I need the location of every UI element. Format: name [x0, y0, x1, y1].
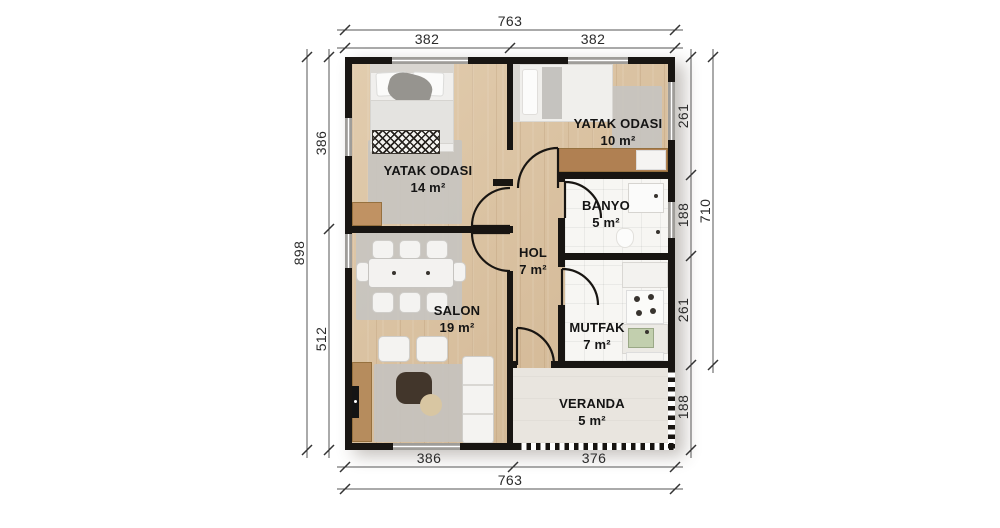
room-name: HOL: [519, 244, 547, 261]
room-name: VERANDA: [559, 395, 625, 412]
room-area: 10 m²: [574, 132, 663, 149]
floor-plan-image: YATAK ODASI 14 m² YATAK ODASI 10 m² BANY…: [0, 0, 1000, 528]
room-name: YATAK ODASI: [574, 115, 663, 132]
dim-bottom-left: 386: [407, 450, 451, 466]
dim-right-1: 261: [675, 94, 691, 138]
room-label-bedroom1: YATAK ODASI 14 m²: [384, 162, 473, 196]
door-arc-bedroom1: [472, 188, 510, 226]
dim-top-total: 763: [488, 13, 532, 29]
dim-bottom-right: 376: [572, 450, 616, 466]
room-area: 14 m²: [384, 179, 473, 196]
wall-hall-right-c: [558, 305, 565, 368]
door-arc-kitchen: [562, 269, 598, 305]
room-name: MUTFAK: [569, 319, 624, 336]
room-label-bathroom: BANYO 5 m²: [582, 197, 630, 231]
door-arc-bedroom2: [518, 148, 558, 188]
wall-hall-veranda-a: [507, 361, 517, 368]
wall-center-upper: [507, 57, 513, 150]
room-label-veranda: VERANDA 5 m²: [559, 395, 625, 429]
dim-right-total: 710: [697, 189, 713, 233]
dim-right-3: 261: [675, 288, 691, 332]
room-area: 5 m²: [559, 412, 625, 429]
dim-left-total: 898: [291, 231, 307, 275]
wall-bedroom2-bath: [558, 172, 675, 179]
room-label-hall: HOL 7 m²: [519, 244, 547, 278]
room-label-bedroom2: YATAK ODASI 10 m²: [574, 115, 663, 149]
dim-right-2: 188: [675, 193, 691, 237]
wall-kitchen-veranda: [565, 361, 668, 368]
dim-top-right: 382: [571, 31, 615, 47]
dim-left-bottom: 512: [313, 317, 329, 361]
room-area: 19 m²: [434, 319, 481, 336]
room-area: 7 m²: [519, 261, 547, 278]
room-name: BANYO: [582, 197, 630, 214]
room-name: SALON: [434, 302, 481, 319]
door-arc-salon: [472, 233, 510, 271]
dim-top-left: 382: [405, 31, 449, 47]
dim-left-top: 386: [313, 121, 329, 165]
room-label-salon: SALON 19 m²: [434, 302, 481, 336]
room-area: 5 m²: [582, 214, 630, 231]
dim-bottom-total: 763: [488, 472, 532, 488]
wall-center-stub: [493, 179, 513, 186]
room-area: 7 m²: [569, 336, 624, 353]
room-label-kitchen: MUTFAK 7 m²: [569, 319, 624, 353]
wall-bath-kitchen: [558, 253, 668, 260]
wall-center-lower: [507, 271, 513, 450]
plan-linework: [0, 0, 1000, 528]
dim-right-4: 188: [675, 385, 691, 429]
room-name: YATAK ODASI: [384, 162, 473, 179]
door-arc-entrance: [517, 328, 554, 365]
